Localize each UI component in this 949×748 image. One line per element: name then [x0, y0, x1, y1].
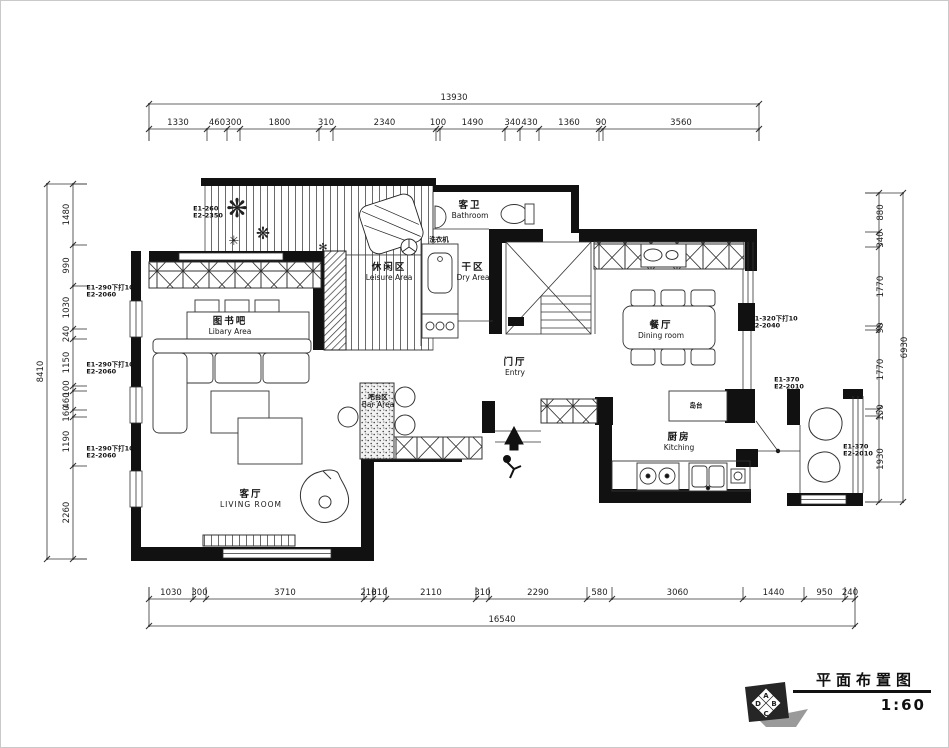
svg-text:2340: 2340 — [374, 118, 396, 128]
drawing-scale: 1:60 — [881, 696, 926, 714]
svg-text:✳: ✳ — [229, 234, 240, 249]
svg-text:990: 990 — [62, 257, 72, 273]
svg-text:1480: 1480 — [62, 204, 72, 226]
svg-text:240: 240 — [62, 326, 72, 342]
living-room-items — [203, 470, 349, 546]
dim-chain-top: 1330460300180031023401001490340430136090… — [146, 93, 762, 141]
svg-text:1490: 1490 — [462, 118, 484, 128]
dim-chain-bottom: 1030300371021031021103102290580306014409… — [146, 587, 858, 629]
dim-chain-left: 148099010302401150100460160119022608410 — [36, 181, 87, 562]
svg-text:1150: 1150 — [62, 352, 72, 374]
svg-text:90: 90 — [596, 118, 607, 128]
svg-text:3710: 3710 — [274, 588, 296, 598]
dry-area-fixtures — [422, 244, 458, 338]
entry-arrow — [504, 427, 524, 478]
title-rule — [793, 690, 931, 693]
svg-text:2110: 2110 — [420, 588, 442, 598]
svg-text:950: 950 — [816, 588, 832, 598]
svg-text:1440: 1440 — [763, 588, 785, 598]
svg-text:1770: 1770 — [876, 276, 886, 298]
svg-text:300: 300 — [191, 588, 207, 598]
dining-furniture — [623, 290, 715, 365]
bathroom-fixtures — [435, 204, 534, 228]
svg-text:580: 580 — [591, 588, 607, 598]
title-block: 平面布置图 1:60 — [733, 667, 938, 729]
svg-text:150: 150 — [876, 404, 886, 420]
svg-text:300: 300 — [225, 118, 241, 128]
svg-text:❋: ❋ — [256, 224, 270, 244]
svg-text:3560: 3560 — [670, 118, 692, 128]
svg-text:100: 100 — [430, 118, 446, 128]
dim-chain-right: 880340177090177015019306930 — [865, 190, 910, 505]
svg-text:430: 430 — [521, 118, 537, 128]
svg-text:1030: 1030 — [160, 588, 182, 598]
sofa-group — [153, 339, 311, 464]
svg-text:1190: 1190 — [62, 431, 72, 453]
svg-text:460: 460 — [209, 118, 225, 128]
svg-text:160: 160 — [62, 405, 72, 421]
balcony-items — [808, 408, 842, 482]
svg-text:1330: 1330 — [167, 118, 189, 128]
library-furniture — [187, 300, 309, 345]
svg-text:2290: 2290 — [527, 588, 549, 598]
svg-text:2260: 2260 — [62, 502, 72, 524]
svg-text:✻: ✻ — [318, 241, 327, 254]
floor-plan-page: ❋ ❋ ✳ ✻ — [0, 0, 949, 748]
svg-text:1030: 1030 — [62, 297, 72, 319]
svg-text:6930: 6930 — [900, 337, 910, 359]
hatched-wall-pillar — [324, 251, 346, 350]
svg-text:310: 310 — [318, 118, 334, 128]
svg-text:1360: 1360 — [558, 118, 580, 128]
svg-text:16540: 16540 — [488, 615, 515, 625]
svg-text:13930: 13930 — [440, 93, 467, 103]
svg-text:310: 310 — [371, 588, 387, 598]
svg-text:8410: 8410 — [36, 361, 46, 383]
drawing-title: 平面布置图 — [801, 669, 931, 690]
svg-text:90: 90 — [876, 323, 886, 334]
svg-text:340: 340 — [876, 231, 886, 247]
svg-text:1800: 1800 — [269, 118, 291, 128]
svg-text:1770: 1770 — [876, 359, 886, 381]
svg-text:310: 310 — [474, 588, 490, 598]
svg-text:❋: ❋ — [226, 194, 248, 224]
svg-text:1930: 1930 — [876, 448, 886, 470]
floor-plan-drawing: ❋ ❋ ✳ ✻ — [1, 1, 948, 747]
svg-text:240: 240 — [842, 588, 858, 598]
stairs — [506, 242, 591, 334]
svg-text:340: 340 — [504, 118, 520, 128]
svg-text:3060: 3060 — [667, 588, 689, 598]
svg-text:880: 880 — [876, 204, 886, 220]
